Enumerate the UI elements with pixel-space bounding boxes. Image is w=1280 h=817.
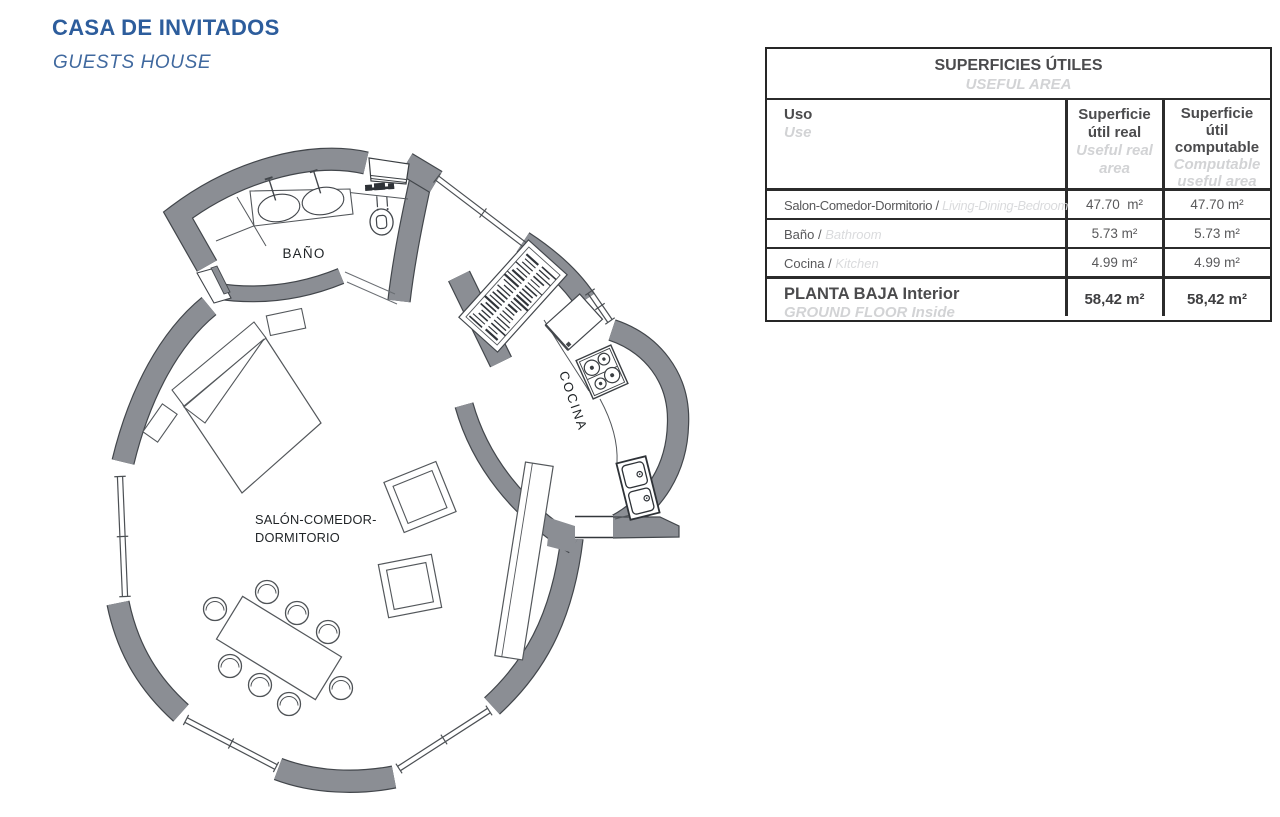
svg-text:SALÓN-COMEDOR-: SALÓN-COMEDOR- (255, 512, 377, 527)
svg-text:BAÑO: BAÑO (282, 246, 325, 261)
svg-text:DORMITORIO: DORMITORIO (255, 530, 340, 545)
